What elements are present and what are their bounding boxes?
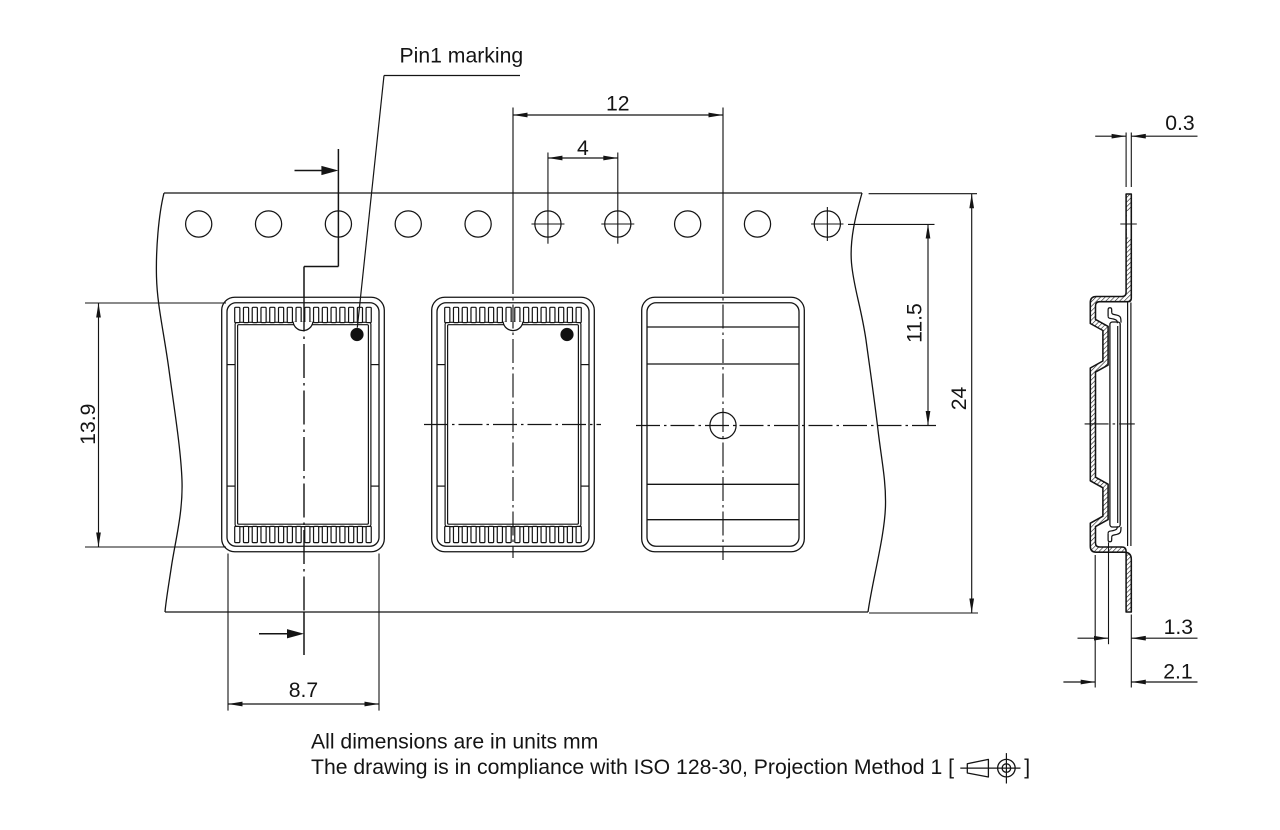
svg-text:8.7: 8.7 xyxy=(289,679,318,702)
svg-text:2.1: 2.1 xyxy=(1163,660,1192,683)
svg-text:1.3: 1.3 xyxy=(1164,616,1193,639)
svg-text:12: 12 xyxy=(606,92,630,115)
svg-text:13.9: 13.9 xyxy=(77,404,100,445)
svg-text:]: ] xyxy=(1024,756,1030,779)
svg-text:11.5: 11.5 xyxy=(904,303,927,343)
svg-text:The drawing is in compliance w: The drawing is in compliance with ISO 12… xyxy=(311,756,954,779)
svg-text:0.3: 0.3 xyxy=(1165,112,1194,135)
svg-text:24: 24 xyxy=(948,387,971,411)
svg-text:All dimensions are in units mm: All dimensions are in units mm xyxy=(311,730,598,753)
svg-text:Pin1 marking: Pin1 marking xyxy=(400,45,524,68)
svg-text:4: 4 xyxy=(577,137,589,160)
